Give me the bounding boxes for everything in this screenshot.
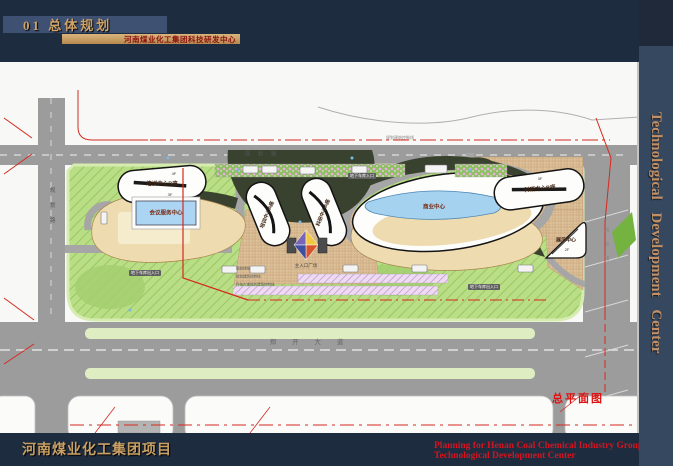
section-title: 01 总体规划	[3, 15, 112, 34]
offsite-building-block	[118, 421, 160, 433]
building-floors-conference: 3F	[168, 193, 173, 197]
section-header-band: 01 总体规划	[3, 16, 167, 33]
site-plan-drawing	[0, 62, 639, 433]
annotation-control-line: 规划建筑控制线	[236, 275, 261, 279]
road-name-west: 规 划 路	[48, 187, 54, 227]
subtitle-bar: 河南煤业化工集团科技研发中心	[62, 34, 240, 44]
building-floors-training-b: 4F	[172, 172, 177, 176]
building-label-commercial: 商业中心	[423, 205, 445, 211]
building-floors-research-b: 3F	[538, 177, 543, 181]
garage-entrance-badge-2: 地下车库出入口	[129, 270, 161, 276]
subtitle-text: 河南煤业化工集团科技研发中心	[124, 34, 240, 45]
sidebar-vertical-title: Technological Development Center	[639, 0, 673, 466]
annotation-green-line: 规划绿线	[236, 267, 250, 271]
english-caption-line1: Planning for Henan Coal Chemical Industr…	[434, 441, 643, 451]
garage-entrance-badge-3: 地下车库出入口	[468, 284, 500, 290]
plaza-label: 主入口广场	[295, 264, 318, 269]
building-label-conference: 会议服务中心	[149, 211, 182, 217]
site-plan-area: 规 划 路 规 划 路 规 划 路 郑 开 大 道 培训中心B座 4F 会议服务…	[0, 62, 639, 433]
garage-entrance-badge-1: 地下车库入口	[348, 173, 376, 179]
english-caption-line2: Technological Development Center	[434, 451, 643, 461]
project-title: 河南煤业化工集团项目	[22, 439, 172, 459]
annotation-road-control-line: 科技大道规划建筑控制线	[236, 283, 275, 287]
plan-caption: 总平面图	[552, 390, 604, 406]
building-label-training-b: 培训中心B座	[146, 182, 177, 188]
building-floors-exhibition: 2F	[565, 248, 570, 252]
english-caption: Planning for Henan Coal Chemical Industr…	[434, 441, 643, 461]
presentation-slide: 01 总体规划 河南煤业化工集团科技研发中心	[0, 0, 673, 466]
sidewalk-islands	[0, 396, 639, 433]
road-name-south: 郑 开 大 道	[270, 340, 350, 347]
building-label-exhibition: 展示中心	[556, 239, 576, 244]
road-name-east: 规 划 路	[604, 227, 609, 265]
right-sidebar: Technological Development Center	[639, 0, 673, 466]
annotation-north-control: 规划建筑控制线	[386, 136, 414, 140]
road-name-north: 规 划 路	[245, 152, 280, 158]
